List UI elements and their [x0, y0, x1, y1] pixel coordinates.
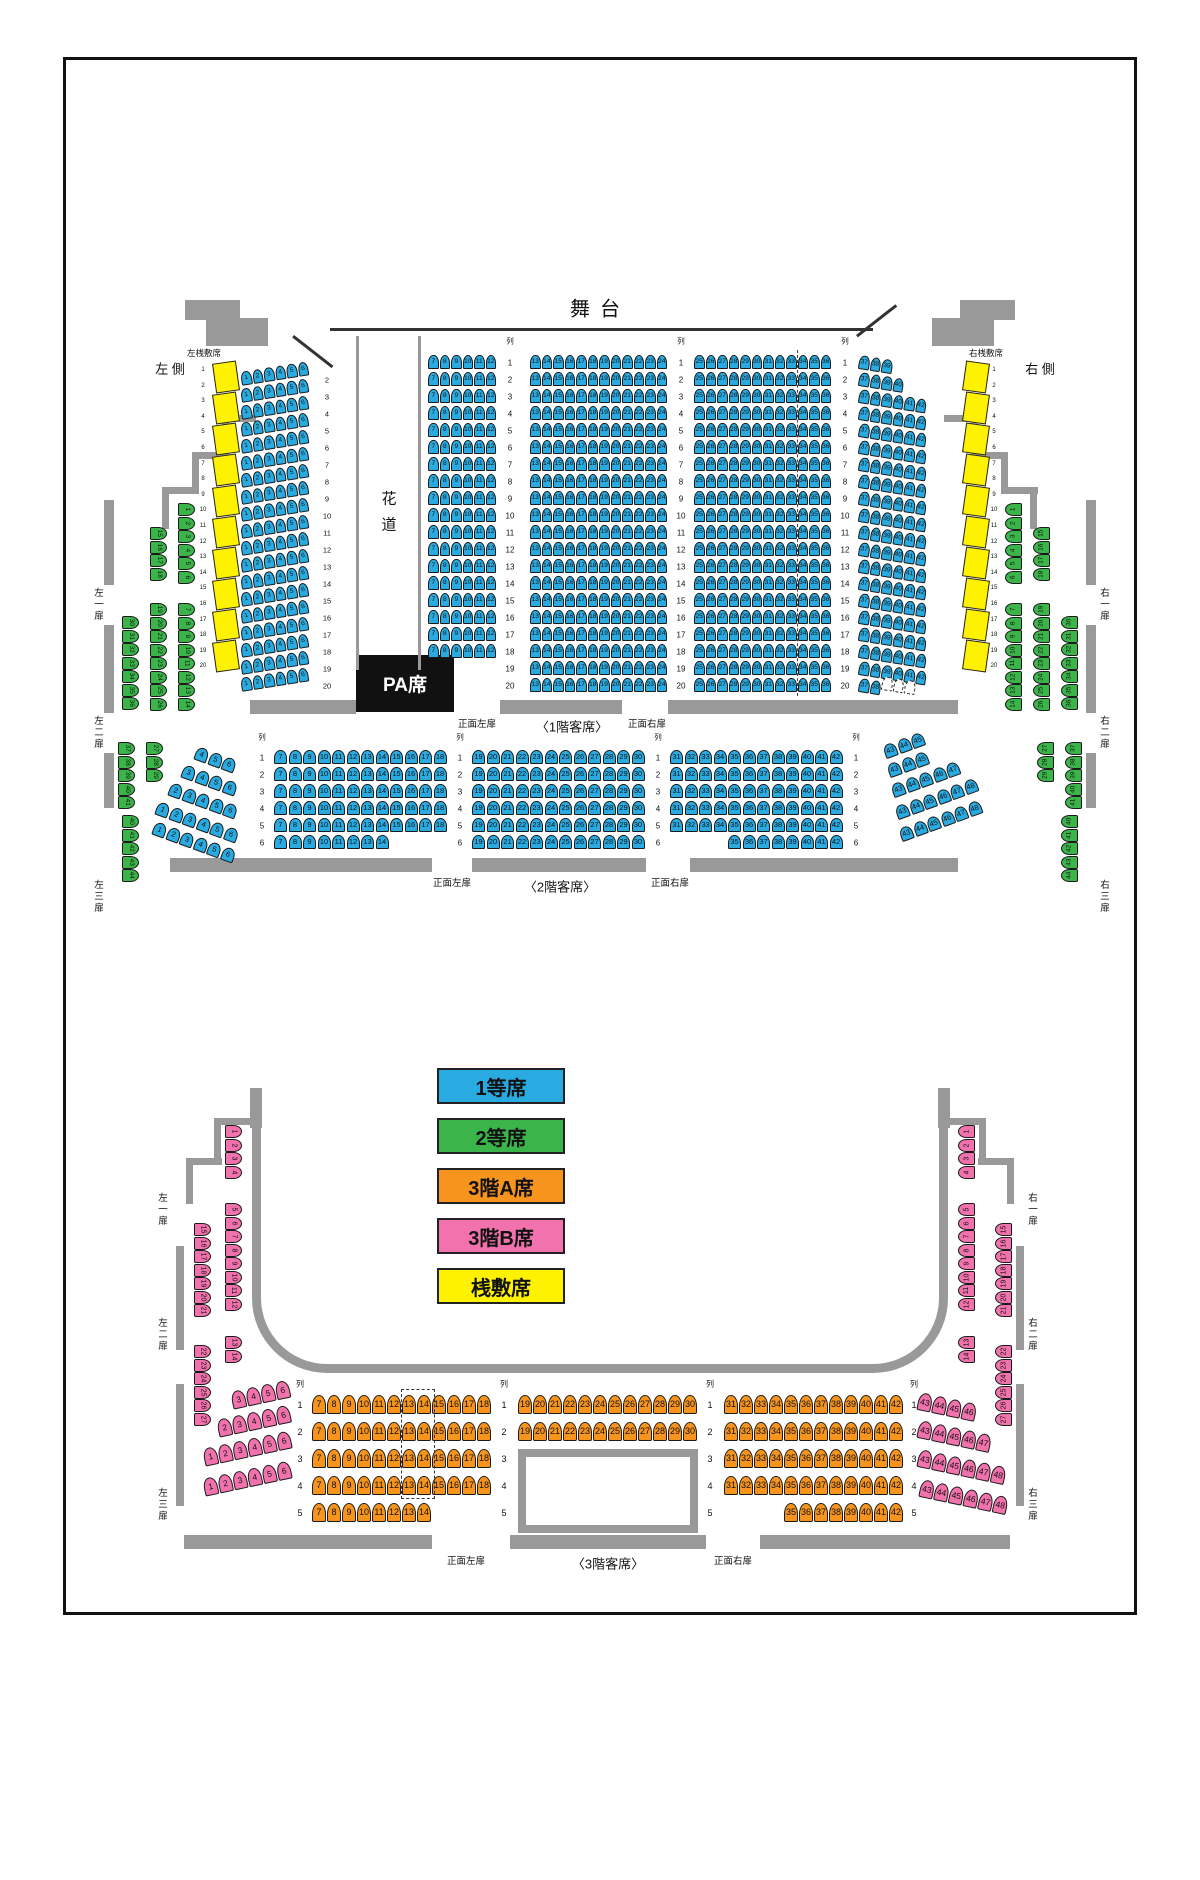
- seat-blue[interactable]: 20: [611, 355, 622, 369]
- seat-blue[interactable]: 14: [376, 767, 389, 781]
- seat-blue[interactable]: 36: [821, 355, 832, 369]
- seat-blue[interactable]: 18: [588, 423, 599, 437]
- seat-blue[interactable]: 26: [706, 610, 717, 624]
- seat-blue[interactable]: 36: [821, 389, 832, 403]
- seat-blue[interactable]: 33: [699, 784, 712, 798]
- seat-green[interactable]: 2: [178, 517, 195, 530]
- seat-blue[interactable]: 14: [376, 818, 389, 832]
- seat-blue[interactable]: 10: [463, 576, 474, 590]
- seat-pink[interactable]: 4: [225, 1166, 242, 1179]
- seat-blue[interactable]: 26: [706, 474, 717, 488]
- seat-orange[interactable]: 8: [327, 1422, 341, 1441]
- seat-blue[interactable]: 33: [699, 767, 712, 781]
- seat-blue[interactable]: 25: [694, 423, 705, 437]
- seat-blue[interactable]: 36: [743, 784, 756, 798]
- seat-blue[interactable]: 25: [694, 474, 705, 488]
- seat-blue[interactable]: 13: [530, 372, 541, 386]
- seat-blue[interactable]: 34: [798, 678, 809, 692]
- seat-green[interactable]: 8: [1005, 617, 1022, 630]
- seat-blue[interactable]: 21: [622, 457, 633, 471]
- sajiki-box[interactable]: [962, 608, 990, 641]
- seat-blue[interactable]: 19: [599, 644, 610, 658]
- seat-blue[interactable]: 11: [474, 644, 485, 658]
- seat-blue[interactable]: 20: [611, 661, 622, 675]
- seat-blue[interactable]: 13: [530, 474, 541, 488]
- seat-orange[interactable]: 34: [769, 1395, 783, 1414]
- seat-blue[interactable]: 16: [405, 784, 418, 798]
- seat-blue[interactable]: 16: [565, 440, 576, 454]
- seat-blue[interactable]: 10: [318, 750, 331, 764]
- seat-blue[interactable]: 27: [717, 372, 728, 386]
- seat-blue[interactable]: 27: [717, 440, 728, 454]
- seat-green[interactable]: 17: [150, 554, 167, 567]
- seat-blue[interactable]: 26: [574, 835, 587, 849]
- seat-blue[interactable]: 10: [463, 542, 474, 556]
- seat-blue[interactable]: 37: [858, 525, 871, 540]
- seat-green[interactable]: 15: [1033, 527, 1050, 540]
- seat-blue[interactable]: 17: [419, 784, 432, 798]
- seat-blue[interactable]: 9: [451, 355, 462, 369]
- seat-orange[interactable]: 9: [342, 1503, 356, 1522]
- seat-blue[interactable]: 11: [474, 423, 485, 437]
- seat-blue[interactable]: 36: [821, 491, 832, 505]
- seat-blue[interactable]: 23: [645, 525, 656, 539]
- seat-green[interactable]: 21: [150, 630, 167, 643]
- seat-green[interactable]: 13: [1005, 684, 1022, 697]
- seat-blue[interactable]: 30: [752, 389, 763, 403]
- seat-blue[interactable]: 24: [657, 610, 668, 624]
- seat-blue[interactable]: 13: [361, 835, 374, 849]
- seat-blue[interactable]: 11: [474, 406, 485, 420]
- seat-green[interactable]: 40: [122, 815, 139, 828]
- seat-blue[interactable]: 7: [428, 593, 439, 607]
- seat-blue[interactable]: 37: [858, 491, 871, 506]
- seat-blue[interactable]: 8: [440, 627, 451, 641]
- seat-green[interactable]: 15: [150, 527, 167, 540]
- seat-blue[interactable]: 25: [694, 610, 705, 624]
- seat-blue[interactable]: 32: [775, 644, 786, 658]
- seat-orange[interactable]: 11: [372, 1449, 386, 1468]
- seat-blue[interactable]: 31: [763, 457, 774, 471]
- seat-orange[interactable]: 17: [462, 1476, 476, 1495]
- seat-blue[interactable]: 8: [440, 542, 451, 556]
- seat-orange[interactable]: 12: [387, 1503, 401, 1522]
- seat-blue[interactable]: 22: [516, 750, 529, 764]
- sajiki-box[interactable]: [212, 484, 240, 517]
- seat-blue[interactable]: 9: [451, 610, 462, 624]
- seat-blue[interactable]: 25: [694, 644, 705, 658]
- sajiki-box[interactable]: [962, 515, 990, 548]
- seat-blue[interactable]: 33: [786, 474, 797, 488]
- seat-orange[interactable]: 36: [799, 1422, 813, 1441]
- seat-blue[interactable]: 31: [763, 491, 774, 505]
- seat-blue[interactable]: 36: [821, 525, 832, 539]
- seat-blue[interactable]: 20: [487, 750, 500, 764]
- seat-blue[interactable]: 22: [634, 423, 645, 437]
- seat-blue[interactable]: 12: [486, 627, 497, 641]
- seat-pink[interactable]: 18: [194, 1264, 211, 1277]
- seat-blue[interactable]: 20: [611, 508, 622, 522]
- seat-blue[interactable]: 39: [881, 410, 894, 425]
- seat-blue[interactable]: 39: [881, 376, 894, 391]
- seat-orange[interactable]: 41: [874, 1422, 888, 1441]
- seat-blue[interactable]: 9: [451, 440, 462, 454]
- seat-green[interactable]: 14: [1005, 698, 1022, 711]
- seat-blue[interactable]: [904, 680, 917, 695]
- seat-orange[interactable]: 35: [784, 1503, 798, 1522]
- seat-orange[interactable]: 22: [563, 1395, 577, 1414]
- seat-blue[interactable]: 34: [798, 542, 809, 556]
- seat-blue[interactable]: 16: [565, 457, 576, 471]
- seat-blue[interactable]: 8: [440, 474, 451, 488]
- seat-blue[interactable]: 15: [553, 440, 564, 454]
- seat-pink[interactable]: 22: [194, 1345, 211, 1358]
- seat-orange[interactable]: 7: [312, 1449, 326, 1468]
- seat-blue[interactable]: 24: [657, 355, 668, 369]
- seat-blue[interactable]: 13: [361, 801, 374, 815]
- seat-blue[interactable]: 28: [729, 423, 740, 437]
- seat-blue[interactable]: 41: [815, 784, 828, 798]
- seat-blue[interactable]: 21: [622, 372, 633, 386]
- seat-blue[interactable]: 41: [903, 515, 916, 530]
- seat-orange[interactable]: 40: [859, 1449, 873, 1468]
- seat-blue[interactable]: 10: [463, 559, 474, 573]
- seat-blue[interactable]: 7: [428, 457, 439, 471]
- seat-blue[interactable]: 30: [752, 661, 763, 675]
- seat-blue[interactable]: 16: [565, 406, 576, 420]
- seat-pink[interactable]: 13: [958, 1336, 975, 1349]
- seat-blue[interactable]: 22: [634, 593, 645, 607]
- seat-blue[interactable]: 18: [588, 406, 599, 420]
- seat-blue[interactable]: 16: [405, 818, 418, 832]
- seat-blue[interactable]: 9: [303, 818, 316, 832]
- seat-blue[interactable]: 19: [472, 835, 485, 849]
- seat-blue[interactable]: 28: [729, 525, 740, 539]
- seat-blue[interactable]: 17: [576, 678, 587, 692]
- seat-blue[interactable]: 22: [634, 457, 645, 471]
- seat-green[interactable]: 24: [1033, 671, 1050, 684]
- seat-blue[interactable]: 19: [599, 542, 610, 556]
- seat-blue[interactable]: 12: [486, 644, 497, 658]
- seat-blue[interactable]: 35: [728, 801, 741, 815]
- seat-blue[interactable]: 34: [798, 508, 809, 522]
- seat-blue[interactable]: 33: [786, 525, 797, 539]
- seat-orange[interactable]: 22: [563, 1422, 577, 1441]
- seat-blue[interactable]: 13: [530, 423, 541, 437]
- seat-blue[interactable]: 17: [576, 525, 587, 539]
- seat-blue[interactable]: 38: [772, 801, 785, 815]
- seat-blue[interactable]: 37: [858, 440, 871, 455]
- seat-blue[interactable]: 41: [903, 532, 916, 547]
- seat-blue[interactable]: 23: [645, 678, 656, 692]
- seat-orange[interactable]: 40: [859, 1395, 873, 1414]
- seat-blue[interactable]: 24: [545, 767, 558, 781]
- seat-blue[interactable]: 13: [530, 491, 541, 505]
- seat-blue[interactable]: 8: [440, 644, 451, 658]
- seat-blue[interactable]: 14: [542, 440, 553, 454]
- seat-blue[interactable]: 7: [428, 525, 439, 539]
- seat-blue[interactable]: 35: [809, 423, 820, 437]
- seat-green[interactable]: 41: [1061, 829, 1078, 842]
- seat-blue[interactable]: 15: [553, 474, 564, 488]
- seat-blue[interactable]: 11: [474, 593, 485, 607]
- seat-blue[interactable]: 37: [858, 542, 871, 557]
- seat-blue[interactable]: 35: [809, 576, 820, 590]
- seat-blue[interactable]: 32: [775, 406, 786, 420]
- seat-blue[interactable]: 38: [772, 818, 785, 832]
- seat-blue[interactable]: 15: [553, 525, 564, 539]
- seat-blue[interactable]: 41: [903, 447, 916, 462]
- seat-blue[interactable]: 25: [694, 508, 705, 522]
- seat-blue[interactable]: 7: [428, 542, 439, 556]
- seat-blue[interactable]: 25: [694, 389, 705, 403]
- seat-blue[interactable]: 30: [752, 627, 763, 641]
- seat-blue[interactable]: 29: [740, 423, 751, 437]
- seat-blue[interactable]: 27: [717, 491, 728, 505]
- seat-pink[interactable]: 13: [225, 1336, 242, 1349]
- sajiki-box[interactable]: [212, 391, 240, 424]
- seat-blue[interactable]: 13: [530, 576, 541, 590]
- seat-pink[interactable]: 10: [225, 1271, 242, 1284]
- seat-blue[interactable]: 21: [501, 767, 514, 781]
- seat-blue[interactable]: 25: [694, 627, 705, 641]
- seat-green[interactable]: 35: [1061, 684, 1078, 697]
- seat-blue[interactable]: 18: [588, 491, 599, 505]
- seat-pink[interactable]: 20: [995, 1291, 1012, 1304]
- seat-green[interactable]: 36: [122, 697, 139, 710]
- seat-blue[interactable]: 21: [622, 423, 633, 437]
- seat-blue[interactable]: 24: [657, 661, 668, 675]
- seat-green[interactable]: 10: [1005, 644, 1022, 657]
- seat-blue[interactable]: 12: [347, 818, 360, 832]
- seat-blue[interactable]: 21: [622, 627, 633, 641]
- seat-blue[interactable]: 8: [440, 559, 451, 573]
- seat-blue[interactable]: 41: [903, 566, 916, 581]
- seat-blue[interactable]: 20: [611, 423, 622, 437]
- seat-blue[interactable]: 24: [657, 389, 668, 403]
- seat-blue[interactable]: 37: [757, 750, 770, 764]
- seat-blue[interactable]: 18: [588, 593, 599, 607]
- seat-blue[interactable]: 13: [530, 406, 541, 420]
- seat-blue[interactable]: 16: [565, 644, 576, 658]
- seat-pink[interactable]: 27: [995, 1413, 1012, 1426]
- seat-blue[interactable]: 39: [881, 393, 894, 408]
- seat-blue[interactable]: 36: [821, 474, 832, 488]
- seat-blue[interactable]: 10: [463, 440, 474, 454]
- seat-orange[interactable]: 39: [844, 1422, 858, 1441]
- seat-blue[interactable]: 37: [858, 406, 871, 421]
- seat-blue[interactable]: 7: [274, 767, 287, 781]
- seat-blue[interactable]: 41: [815, 750, 828, 764]
- seat-blue[interactable]: 22: [634, 440, 645, 454]
- seat-blue[interactable]: 9: [451, 508, 462, 522]
- seat-blue[interactable]: 9: [451, 559, 462, 573]
- seat-blue[interactable]: 10: [318, 835, 331, 849]
- seat-green[interactable]: 18: [150, 568, 167, 581]
- seat-blue[interactable]: 27: [588, 784, 601, 798]
- seat-orange[interactable]: 21: [548, 1395, 562, 1414]
- seat-blue[interactable]: 9: [451, 474, 462, 488]
- seat-blue[interactable]: 17: [576, 423, 587, 437]
- seat-blue[interactable]: 41: [903, 617, 916, 632]
- seat-blue[interactable]: 27: [717, 644, 728, 658]
- seat-blue[interactable]: 7: [428, 440, 439, 454]
- seat-blue[interactable]: 14: [542, 457, 553, 471]
- seat-blue[interactable]: 15: [390, 784, 403, 798]
- seat-blue[interactable]: 8: [440, 610, 451, 624]
- seat-blue[interactable]: 31: [670, 818, 683, 832]
- seat-blue[interactable]: 33: [699, 818, 712, 832]
- seat-blue[interactable]: 30: [752, 406, 763, 420]
- seat-orange[interactable]: 40: [859, 1476, 873, 1495]
- seat-blue[interactable]: 14: [376, 784, 389, 798]
- seat-blue[interactable]: 28: [729, 389, 740, 403]
- seat-pink[interactable]: 15: [995, 1223, 1012, 1236]
- seat-blue[interactable]: 17: [419, 750, 432, 764]
- seat-blue[interactable]: 8: [289, 767, 302, 781]
- seat-blue[interactable]: 11: [474, 525, 485, 539]
- seat-blue[interactable]: 15: [553, 627, 564, 641]
- seat-blue[interactable]: 27: [717, 559, 728, 573]
- seat-green[interactable]: 5: [178, 557, 195, 570]
- seat-blue[interactable]: 24: [657, 491, 668, 505]
- seat-pink[interactable]: 9: [225, 1257, 242, 1270]
- seat-blue[interactable]: 7: [428, 559, 439, 573]
- seat-blue[interactable]: 22: [634, 559, 645, 573]
- seat-blue[interactable]: 11: [474, 508, 485, 522]
- seat-orange[interactable]: 32: [739, 1449, 753, 1468]
- seat-blue[interactable]: 14: [542, 559, 553, 573]
- seat-blue[interactable]: 11: [474, 627, 485, 641]
- seat-orange[interactable]: 16: [447, 1476, 461, 1495]
- seat-blue[interactable]: 34: [798, 610, 809, 624]
- seat-blue[interactable]: 20: [611, 491, 622, 505]
- seat-blue[interactable]: 23: [645, 423, 656, 437]
- seat-orange[interactable]: 42: [889, 1503, 903, 1522]
- seat-green[interactable]: 40: [1065, 783, 1082, 796]
- seat-green[interactable]: 29: [1037, 769, 1054, 782]
- seat-orange[interactable]: 17: [462, 1395, 476, 1414]
- seat-blue[interactable]: 12: [486, 423, 497, 437]
- seat-blue[interactable]: 18: [588, 610, 599, 624]
- seat-blue[interactable]: 11: [332, 835, 345, 849]
- seat-blue[interactable]: 34: [798, 491, 809, 505]
- seat-blue[interactable]: 24: [545, 750, 558, 764]
- seat-blue[interactable]: 35: [809, 610, 820, 624]
- seat-blue[interactable]: 36: [743, 818, 756, 832]
- seat-green[interactable]: 36: [1061, 697, 1078, 710]
- seat-blue[interactable]: 40: [801, 767, 814, 781]
- seat-blue[interactable]: 20: [611, 474, 622, 488]
- seat-blue[interactable]: 32: [775, 389, 786, 403]
- seat-pink[interactable]: 16: [194, 1237, 211, 1250]
- seat-orange[interactable]: 19: [518, 1395, 532, 1414]
- seat-orange[interactable]: 17: [462, 1422, 476, 1441]
- seat-blue[interactable]: 33: [786, 678, 797, 692]
- seat-orange[interactable]: 30: [683, 1395, 697, 1414]
- seat-blue[interactable]: 10: [463, 423, 474, 437]
- sajiki-box[interactable]: [962, 484, 990, 517]
- seat-blue[interactable]: 37: [757, 784, 770, 798]
- seat-blue[interactable]: 28: [603, 818, 616, 832]
- seat-blue[interactable]: 19: [599, 593, 610, 607]
- seat-blue[interactable]: 18: [434, 801, 447, 815]
- seat-blue[interactable]: 9: [303, 801, 316, 815]
- seat-blue[interactable]: 7: [428, 508, 439, 522]
- seat-orange[interactable]: 11: [372, 1476, 386, 1495]
- seat-orange[interactable]: 38: [829, 1476, 843, 1495]
- seat-blue[interactable]: 16: [565, 474, 576, 488]
- sajiki-box[interactable]: [212, 515, 240, 548]
- seat-blue[interactable]: 14: [542, 661, 553, 675]
- seat-orange[interactable]: 35: [784, 1422, 798, 1441]
- seat-blue[interactable]: 31: [763, 355, 774, 369]
- seat-orange[interactable]: 12: [387, 1449, 401, 1468]
- seat-blue[interactable]: 38: [772, 784, 785, 798]
- seat-pink[interactable]: 16: [995, 1237, 1012, 1250]
- seat-blue[interactable]: 39: [881, 427, 894, 442]
- seat-orange[interactable]: 24: [593, 1395, 607, 1414]
- seat-blue[interactable]: 32: [775, 457, 786, 471]
- seat-blue[interactable]: 20: [611, 678, 622, 692]
- sajiki-box[interactable]: [212, 577, 240, 610]
- seat-orange[interactable]: 11: [372, 1503, 386, 1522]
- seat-green[interactable]: 37: [1065, 742, 1082, 755]
- seat-blue[interactable]: 15: [390, 767, 403, 781]
- seat-blue[interactable]: 31: [763, 610, 774, 624]
- seat-blue[interactable]: 30: [632, 750, 645, 764]
- seat-blue[interactable]: 26: [574, 750, 587, 764]
- seat-blue[interactable]: 21: [622, 525, 633, 539]
- seat-blue[interactable]: 21: [622, 644, 633, 658]
- seat-blue[interactable]: 35: [809, 440, 820, 454]
- seat-blue[interactable]: 35: [809, 508, 820, 522]
- seat-blue[interactable]: 21: [501, 750, 514, 764]
- seat-blue[interactable]: 7: [428, 474, 439, 488]
- seat-blue[interactable]: 39: [881, 648, 894, 663]
- seat-pink[interactable]: 25: [194, 1386, 211, 1399]
- seat-blue[interactable]: 30: [752, 372, 763, 386]
- seat-blue[interactable]: 12: [347, 750, 360, 764]
- seat-blue[interactable]: 20: [611, 559, 622, 573]
- seat-blue[interactable]: 30: [752, 474, 763, 488]
- seat-blue[interactable]: 20: [611, 644, 622, 658]
- seat-blue[interactable]: 24: [657, 508, 668, 522]
- seat-blue[interactable]: 12: [486, 525, 497, 539]
- seat-orange[interactable]: 7: [312, 1422, 326, 1441]
- seat-blue[interactable]: 39: [881, 461, 894, 476]
- seat-blue[interactable]: 23: [645, 440, 656, 454]
- seat-blue[interactable]: 13: [530, 610, 541, 624]
- seat-blue[interactable]: 11: [474, 474, 485, 488]
- seat-orange[interactable]: 27: [638, 1395, 652, 1414]
- seat-blue[interactable]: 10: [463, 406, 474, 420]
- seat-blue[interactable]: 31: [763, 423, 774, 437]
- seat-orange[interactable]: 38: [829, 1449, 843, 1468]
- seat-blue[interactable]: 35: [809, 593, 820, 607]
- seat-blue[interactable]: 31: [670, 801, 683, 815]
- seat-blue[interactable]: 16: [565, 542, 576, 556]
- seat-blue[interactable]: 41: [903, 396, 916, 411]
- seat-blue[interactable]: 29: [740, 627, 751, 641]
- sajiki-box[interactable]: [962, 546, 990, 579]
- seat-blue[interactable]: 41: [903, 651, 916, 666]
- seat-blue[interactable]: 30: [632, 767, 645, 781]
- seat-orange[interactable]: 42: [889, 1395, 903, 1414]
- seat-green[interactable]: 21: [1033, 630, 1050, 643]
- seat-blue[interactable]: 42: [830, 767, 843, 781]
- seat-blue[interactable]: 33: [786, 423, 797, 437]
